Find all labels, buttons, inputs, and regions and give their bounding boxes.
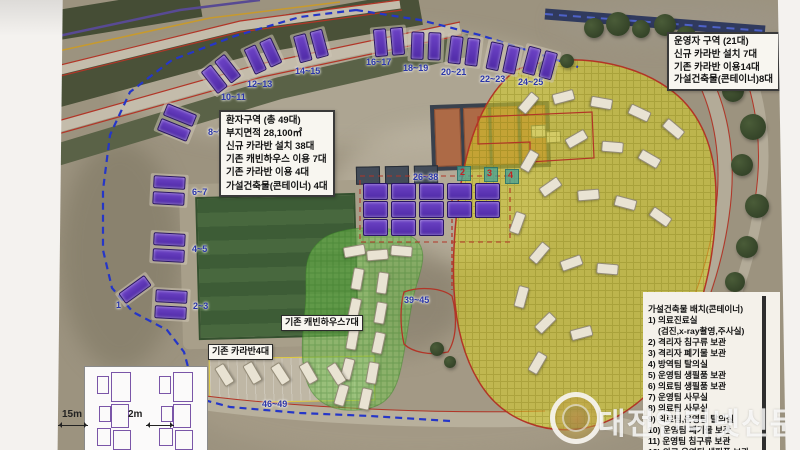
list-item: 5) 운영팀 생필품 보관 xyxy=(648,370,749,381)
old-caravan-label: 기존 카라반4대 xyxy=(208,344,273,360)
list-item: 3) 격리자 폐기물 보관 xyxy=(648,348,749,359)
caravan-grid-row xyxy=(363,219,444,236)
dimension-arrow xyxy=(146,425,174,426)
caravan-grid-row xyxy=(363,183,500,200)
dimension-arrow xyxy=(58,425,88,426)
caravan-icon xyxy=(502,45,521,75)
tree-icon xyxy=(444,356,456,368)
info-line: 기존 카라반 이용14대 xyxy=(674,62,773,75)
patient-zone-info-box: 환자구역 (총 49대) 부지면적 28,100㎡ 신규 카라반 설치 38대 … xyxy=(219,110,335,197)
info-line: 신규 카라반 설치 7대 xyxy=(674,49,773,62)
caravan-icon xyxy=(475,183,500,200)
caravan-icon xyxy=(391,201,416,218)
list-item: 1) 의료진료실 xyxy=(648,315,749,326)
site-plan-photo: 1 2~3 4~5 6~7 8~9 10~11 12~13 14~15 16~1… xyxy=(0,0,800,450)
caravan-pair xyxy=(149,230,189,265)
white-caravan-icon xyxy=(577,189,600,202)
caravan-icon xyxy=(373,28,388,57)
caravan-pair xyxy=(407,29,444,62)
dimension-label: 2m xyxy=(128,409,142,420)
bay-label: 12~13 xyxy=(247,79,272,89)
dimension-label: 15m xyxy=(62,409,82,420)
court-number: 4 xyxy=(508,170,513,180)
caravan-icon xyxy=(152,248,185,263)
caravan-icon xyxy=(153,232,186,247)
tree-icon xyxy=(736,236,758,258)
bay-label: 39~45 xyxy=(404,295,429,305)
tree-icon xyxy=(740,114,766,140)
caravan-pair xyxy=(370,24,409,59)
caravan-icon xyxy=(363,201,388,218)
bay-label: 20~21 xyxy=(441,67,466,77)
white-caravan-icon xyxy=(601,141,624,154)
tree-icon xyxy=(430,342,444,356)
caravan-pair xyxy=(151,287,191,322)
info-line: 부지면적 28,100㎡ xyxy=(226,127,328,140)
white-cabin-icon xyxy=(366,249,389,262)
caravan-icon xyxy=(363,183,388,200)
info-line: 운영자 구역 (21대) xyxy=(674,36,773,49)
caravan-pair xyxy=(444,33,484,69)
tree-icon xyxy=(606,12,630,36)
bay-label: 10~11 xyxy=(221,92,246,102)
caravan-icon xyxy=(475,201,500,218)
caravan-icon xyxy=(428,32,442,60)
list-item: 2) 격리자 침구류 보관 xyxy=(648,337,749,348)
caravan-icon xyxy=(152,191,185,206)
white-cabin-icon xyxy=(390,245,413,258)
caravan-grid-row xyxy=(363,201,500,218)
caravan-icon xyxy=(419,183,444,200)
list-item: 4) 방역팀 탈의실 xyxy=(648,359,749,370)
caravan-icon xyxy=(464,37,480,66)
info-line: 가설건축물(콘테이너)8대 xyxy=(674,74,773,87)
list-item: 6) 의료팀 생필품 보관 xyxy=(648,381,749,392)
press-logo-icon xyxy=(550,392,602,444)
caravan-icon xyxy=(538,50,558,80)
bay-label: 18~19 xyxy=(403,63,428,73)
bay-label: 46~49 xyxy=(262,399,287,409)
operator-zone-info-box: 운영자 구역 (21대) 신규 카라반 설치 7대 기존 카라반 이용14대 가… xyxy=(667,32,780,91)
watermark-text: 대전인터넷신문 xyxy=(598,399,798,443)
bay-label: 14~15 xyxy=(295,66,320,76)
bay-label: 22~23 xyxy=(480,74,505,84)
bay-label: 1 xyxy=(116,300,121,310)
info-line: 환자구역 (총 49대) xyxy=(226,114,328,127)
bay-label: 2~3 xyxy=(193,301,208,311)
caravan-icon xyxy=(154,305,187,320)
paper-margin-left xyxy=(0,0,64,450)
cabin-house-label: 기존 캐빈하우스7대 xyxy=(281,315,363,331)
caravan-icon xyxy=(485,41,504,71)
caravan-icon xyxy=(391,183,416,200)
caravan-icon xyxy=(447,183,472,200)
caravan-icon xyxy=(390,27,405,56)
tree-icon xyxy=(632,20,650,38)
info-line: 신규 카라반 설치 38대 xyxy=(226,140,328,153)
caravan-icon xyxy=(363,219,388,236)
caravan-icon xyxy=(155,289,188,304)
caravan-icon xyxy=(293,33,313,63)
tree-icon xyxy=(584,18,604,38)
info-line: 기존 캐빈하우스 이용 7대 xyxy=(226,153,328,166)
tree-icon xyxy=(745,194,769,218)
caravan-icon xyxy=(447,201,472,218)
info-line: 기존 카라반 이용 4대 xyxy=(226,166,328,179)
inset-caravan-diagram xyxy=(84,366,208,450)
caravan-pair xyxy=(149,173,189,208)
caravan-icon xyxy=(391,219,416,236)
caravan-icon xyxy=(447,35,463,64)
caravan-icon xyxy=(419,219,444,236)
tree-icon xyxy=(725,272,745,292)
tree-icon xyxy=(560,54,574,68)
caravan-icon xyxy=(411,31,425,59)
info-line: 가설건축물(콘테이너) 4대 xyxy=(226,180,328,193)
pitch-drawing xyxy=(157,372,197,450)
bay-label: 24~25 xyxy=(518,77,543,87)
list-item: (검진,x-ray촬영,주사실) xyxy=(648,326,749,337)
bay-label: 6~7 xyxy=(192,187,207,197)
list-title: 가설건축물 배치(콘테이너) xyxy=(648,304,749,315)
court-number: 2 xyxy=(460,167,465,177)
tree-icon xyxy=(731,154,753,176)
court-number: 3 xyxy=(487,168,492,178)
bay-label: 4~5 xyxy=(192,244,207,254)
bay-label: 16~17 xyxy=(366,57,391,67)
caravan-icon xyxy=(419,201,444,218)
white-caravan-icon xyxy=(596,263,619,276)
caravan-icon xyxy=(153,175,186,190)
bay-label: 26~38 xyxy=(413,172,438,182)
caravan-icon xyxy=(309,29,329,59)
